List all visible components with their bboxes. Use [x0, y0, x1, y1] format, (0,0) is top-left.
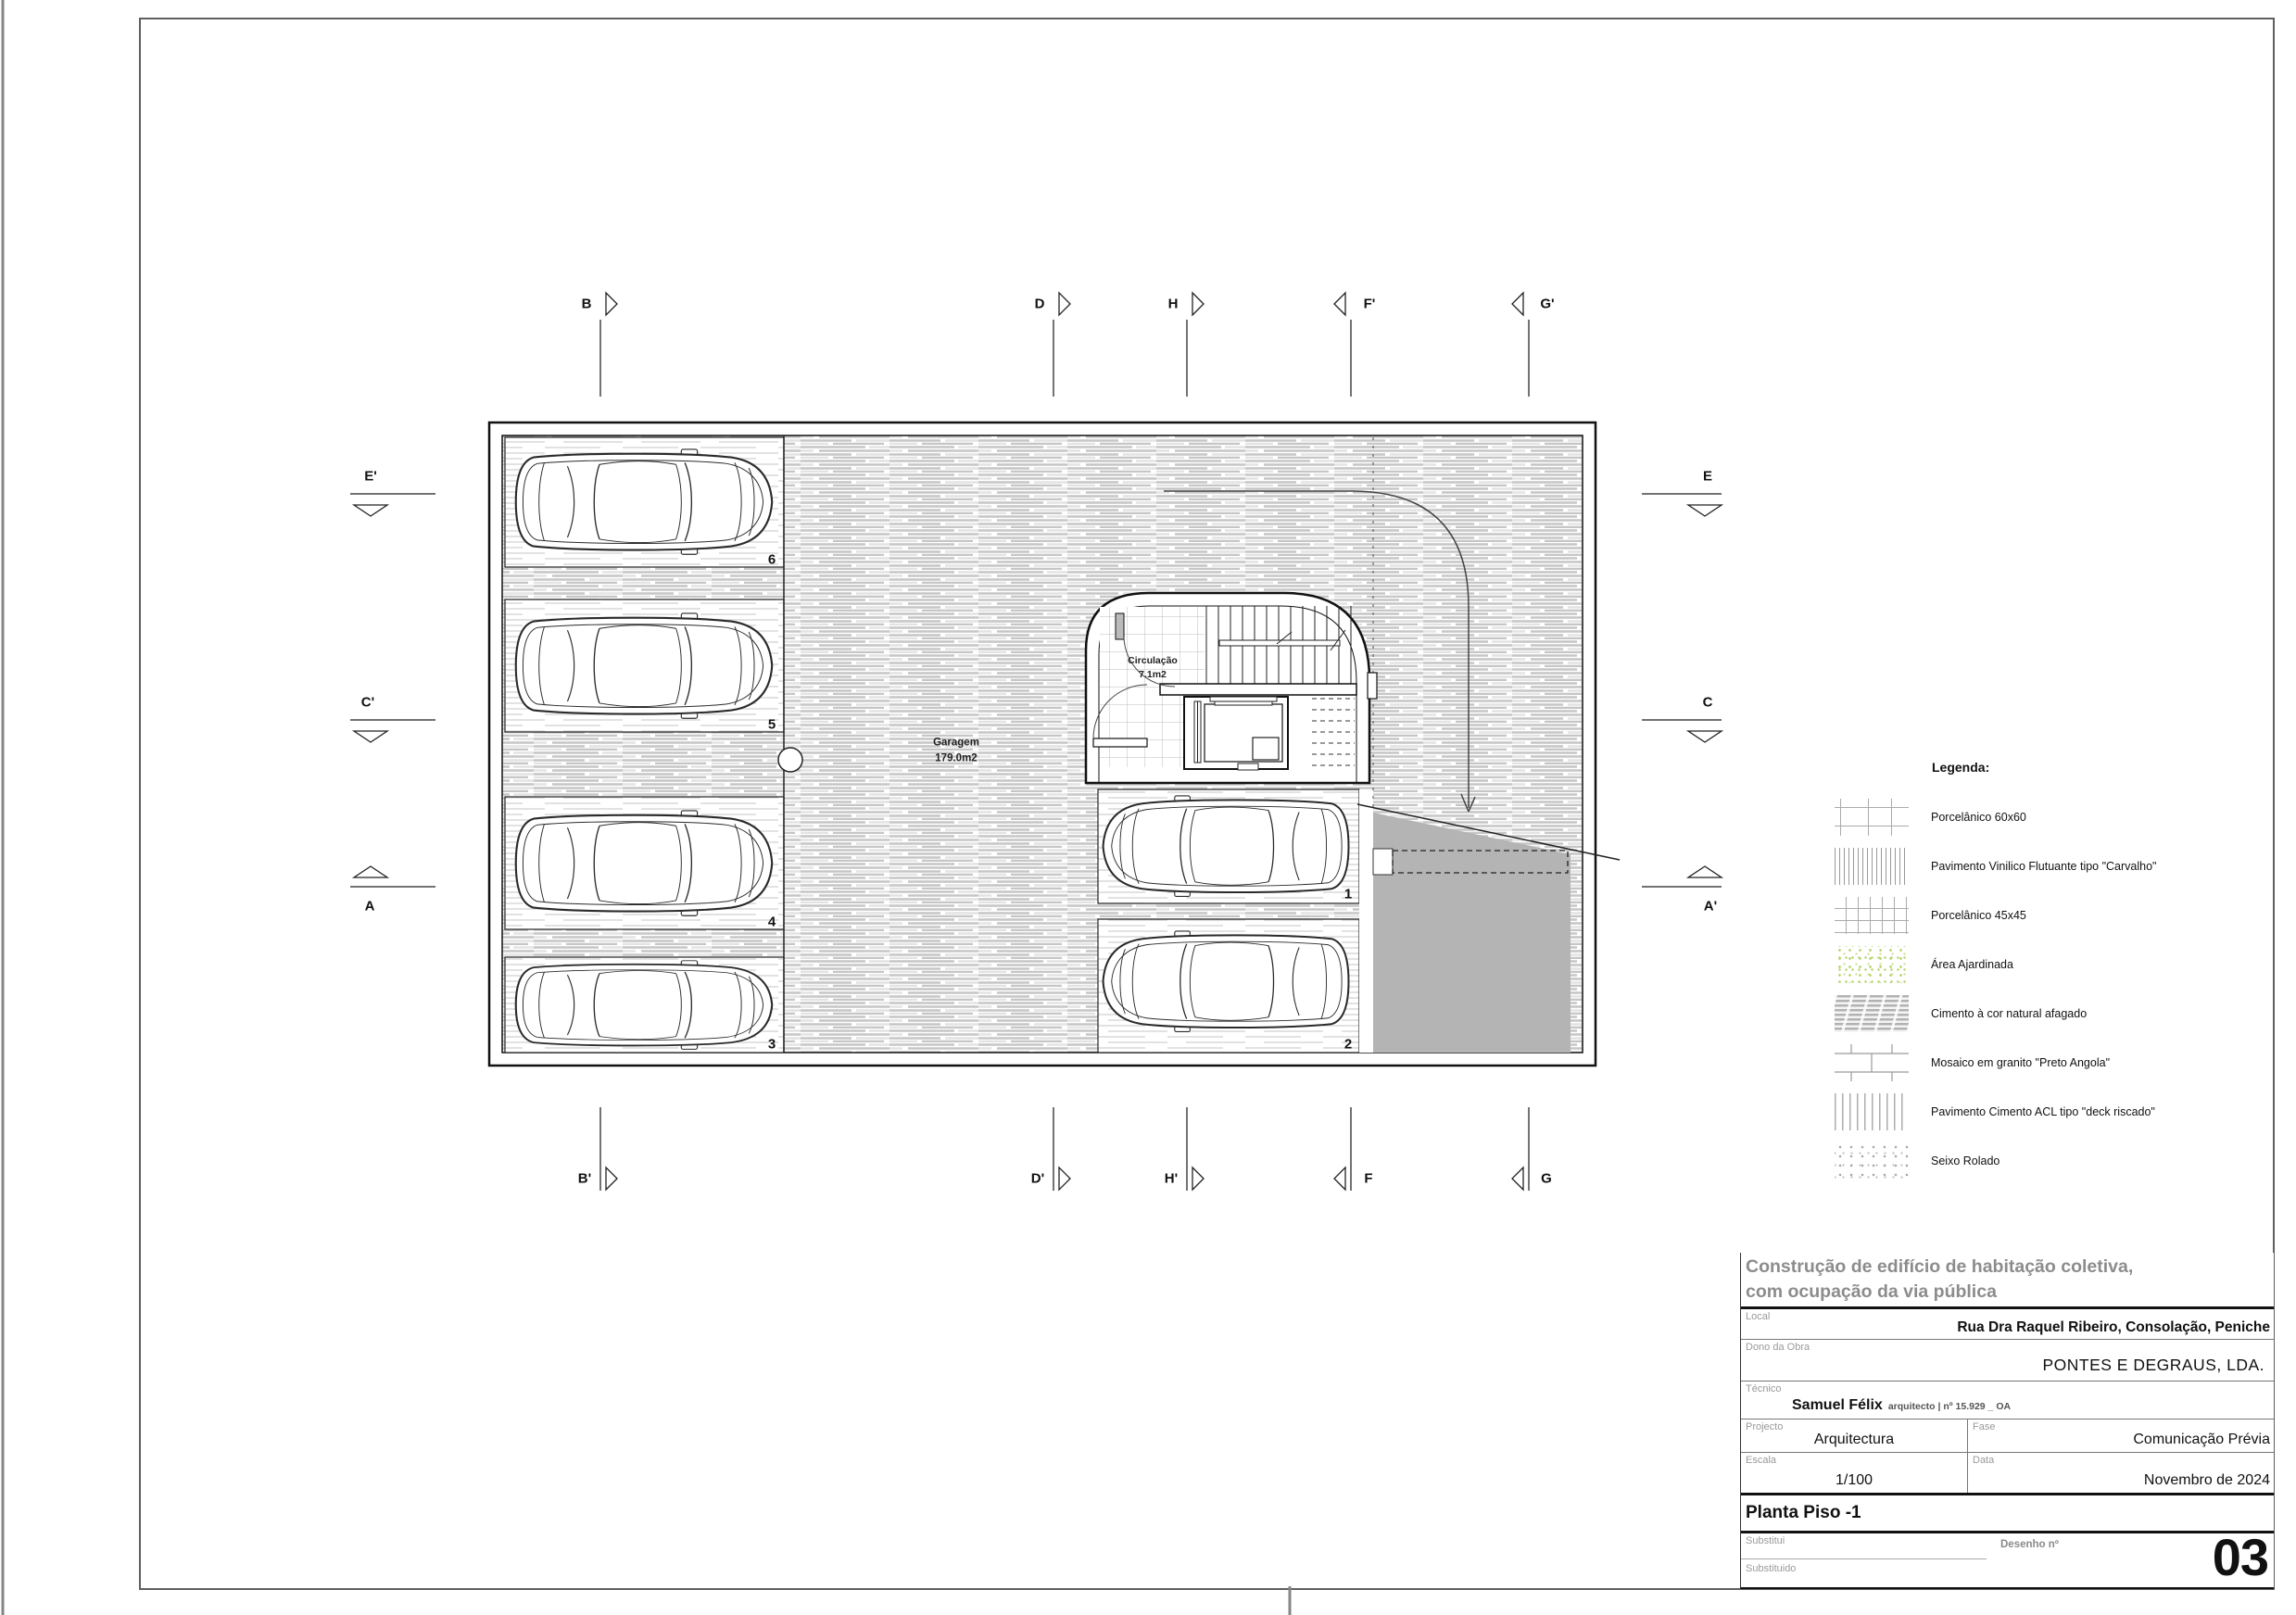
stall-number: 1	[1344, 887, 1352, 902]
garage-room-name: Garagem	[933, 735, 979, 751]
section-label-left-a: A	[365, 899, 375, 915]
legend-item: Cimento à cor natural afagado	[1835, 995, 2270, 1032]
section-label-left-e2: E'	[364, 469, 377, 485]
stair-core	[1086, 593, 1377, 783]
stall-number: 3	[768, 1037, 776, 1053]
section-label-bottom-b2: B'	[578, 1171, 591, 1187]
stall-number: 5	[768, 717, 776, 733]
title-block-row-owner: Dono da Obra PONTES E DEGRAUS, LDA.	[1741, 1339, 2274, 1381]
pebbles-swatch	[1835, 1142, 1909, 1180]
phase-label: Fase	[1973, 1421, 1995, 1432]
section-label-right-a2: A'	[1704, 899, 1717, 915]
legend-item-label: Porcelânico 60x60	[1931, 811, 2026, 824]
local-value: Rua Dra Raquel Ribeiro, Consolação, Peni…	[1957, 1319, 2270, 1336]
circulation-room-label: Circulação 7.1m2	[1128, 654, 1178, 682]
garage-room-label: Garagem 179.0m2	[933, 735, 979, 765]
technician-name: Samuel Félix	[1792, 1397, 1883, 1413]
title-block-row-technician: Técnico Samuel Félixarquitecto | nº 15.9…	[1741, 1381, 2274, 1419]
garage-room-area: 179.0m2	[933, 751, 979, 766]
stall-number: 6	[768, 552, 776, 568]
phase-cell: Fase Comunicação Prévia	[1967, 1419, 2274, 1452]
stall-number: 4	[768, 915, 776, 930]
legend-item: Pavimento Cimento ACL tipo "deck riscado…	[1835, 1093, 2270, 1130]
phase-value: Comunicação Prévia	[2133, 1432, 2270, 1448]
date-label: Data	[1973, 1455, 1994, 1466]
section-label-right-c: C	[1703, 695, 1713, 711]
legend-item-label: Seixo Rolado	[1931, 1154, 2000, 1167]
project-title: Construção de edifício de habitação cole…	[1741, 1253, 2274, 1306]
legend-title: Legenda:	[1932, 760, 2270, 775]
section-label-top-d: D	[1035, 297, 1045, 312]
title-block-row-revisions: Substitui Substituido Desenho nº 03	[1741, 1531, 2274, 1582]
project-title-line1: Construção de edifício de habitação cole…	[1746, 1255, 2274, 1280]
legend: Legenda: Porcelânico 60x60 Pavimento Vin…	[1835, 760, 2270, 1192]
title-block-row-project-phase: Projecto Arquitectura Fase Comunicação P…	[1741, 1419, 2274, 1452]
drawing-sheet: B D H F' G' B' D' H' F G E' C' A E C A' …	[0, 0, 2296, 1615]
scale-cell: Escala 1/100	[1741, 1453, 1967, 1493]
title-block-row-scale-date: Escala 1/100 Data Novembro de 2024	[1741, 1452, 2274, 1493]
owner-label: Dono da Obra	[1746, 1342, 1810, 1353]
project-title-line2: com ocupação da via pública	[1746, 1280, 2274, 1305]
porcelain-45x45-swatch	[1835, 897, 1909, 934]
scale-value: 1/100	[1741, 1472, 1967, 1489]
section-label-bottom-f: F	[1364, 1171, 1372, 1187]
garden-area-swatch	[1835, 946, 1909, 983]
drawing-title: Planta Piso -1	[1746, 1503, 1861, 1523]
granite-mosaic-swatch	[1835, 1044, 1909, 1081]
stall-number: 2	[1344, 1037, 1352, 1053]
legend-item: Pavimento Vinilico Flutuante tipo "Carva…	[1835, 848, 2270, 885]
drawing-number-label: Desenho nº	[2000, 1539, 2059, 1550]
porcelain-60x60-swatch	[1835, 799, 1909, 836]
legend-item-label: Mosaico em granito "Preto Angola"	[1931, 1056, 2110, 1069]
legend-item: Porcelânico 60x60	[1835, 799, 2270, 836]
date-cell: Data Novembro de 2024	[1967, 1453, 2274, 1493]
section-label-top-f2: F'	[1364, 297, 1376, 312]
replaced-label: Substituido	[1746, 1563, 1796, 1574]
project-cell: Projecto Arquitectura	[1741, 1419, 1967, 1452]
smoothed-cement-swatch	[1835, 995, 1909, 1032]
vinyl-plank-swatch	[1835, 848, 1909, 885]
project-value: Arquitectura	[1741, 1432, 1967, 1448]
legend-item: Área Ajardinada	[1835, 946, 2270, 983]
legend-item-label: Pavimento Cimento ACL tipo "deck riscado…	[1931, 1105, 2155, 1118]
date-value: Novembro de 2024	[2144, 1472, 2270, 1489]
legend-item-label: Porcelânico 45x45	[1931, 909, 2026, 922]
title-block: Construção de edifício de habitação cole…	[1740, 1253, 2274, 1589]
replaces-label: Substitui	[1746, 1535, 1785, 1546]
circulation-room-area: 7.1m2	[1128, 668, 1178, 682]
replaces-line	[1741, 1558, 1987, 1559]
legend-item: Seixo Rolado	[1835, 1142, 2270, 1180]
title-block-row-drawing-title: Planta Piso -1	[1741, 1493, 2274, 1531]
section-label-top-b: B	[582, 297, 592, 312]
section-label-top-g2: G'	[1540, 297, 1554, 312]
column-marker	[778, 748, 802, 772]
section-label-top-h: H	[1168, 297, 1179, 312]
legend-item: Porcelânico 45x45	[1835, 897, 2270, 934]
section-label-bottom-d2: D'	[1031, 1171, 1044, 1187]
legend-item-label: Pavimento Vinilico Flutuante tipo "Carva…	[1931, 860, 2157, 873]
scale-label: Escala	[1746, 1455, 1776, 1466]
local-label: Local	[1746, 1311, 1770, 1322]
section-label-right-e: E	[1703, 469, 1712, 485]
technician-credentials: arquitecto | nº 15.929 _ OA	[1888, 1401, 2011, 1412]
technician-value: Samuel Félixarquitecto | nº 15.929 _ OA	[1792, 1397, 2011, 1414]
legend-item-label: Área Ajardinada	[1931, 958, 2013, 971]
title-block-row-local: Local Rua Dra Raquel Ribeiro, Consolação…	[1741, 1306, 2274, 1339]
technician-label: Técnico	[1746, 1383, 1782, 1394]
drawing-number: 03	[2213, 1533, 2268, 1582]
legend-item-label: Cimento à cor natural afagado	[1931, 1007, 2087, 1020]
elevator	[1184, 697, 1288, 770]
section-label-bottom-g: G	[1541, 1171, 1552, 1187]
section-label-bottom-h2: H'	[1165, 1171, 1178, 1187]
legend-item: Mosaico em granito "Preto Angola"	[1835, 1044, 2270, 1081]
section-label-left-c2: C'	[361, 695, 374, 711]
owner-value: PONTES E DEGRAUS, LDA.	[2042, 1356, 2264, 1375]
scored-deck-swatch	[1835, 1093, 1909, 1130]
circulation-room-name: Circulação	[1128, 654, 1178, 668]
